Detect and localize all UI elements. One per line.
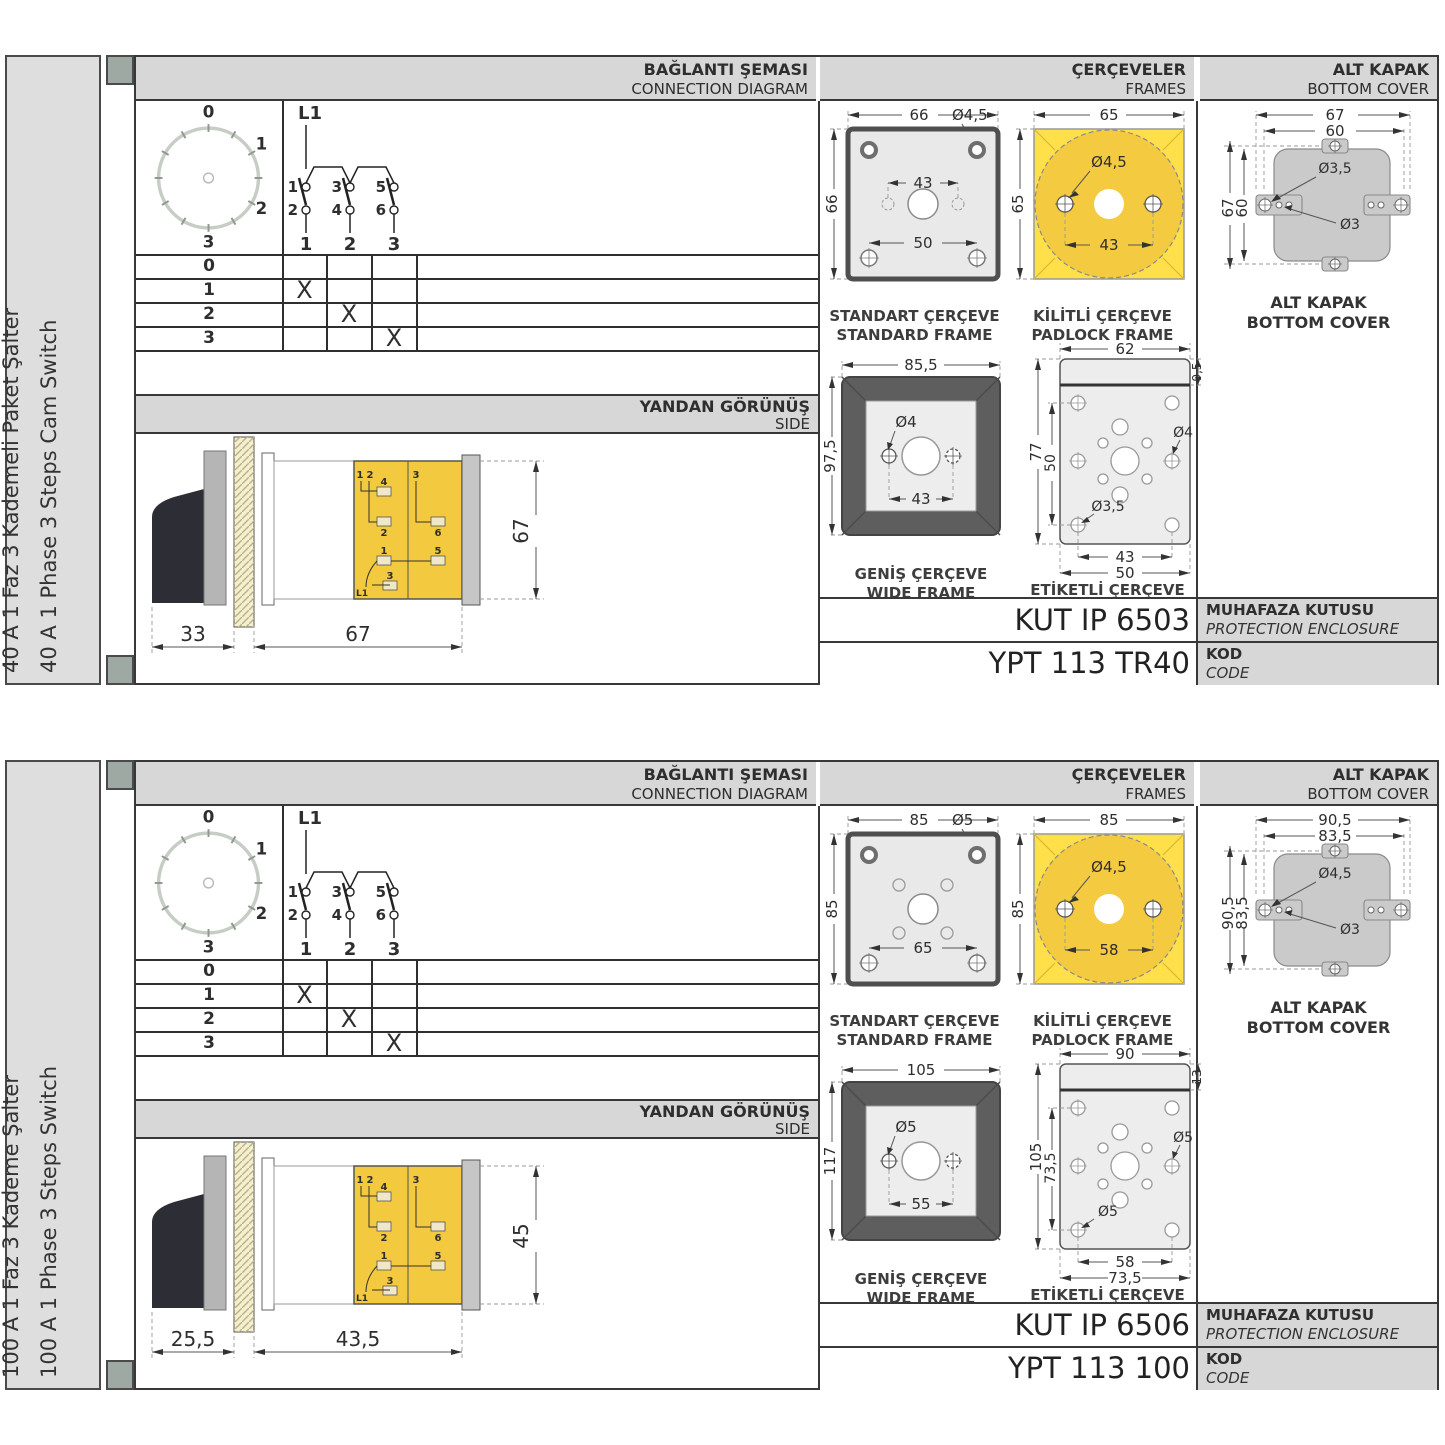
cov-hole1-label: Ø4,5 <box>1318 866 1351 882</box>
pad-hole-label: Ø4,5 <box>1091 858 1127 876</box>
product-sidebar: 40 A 1 Faz 3 Kademeli Paket Şalter 40 A … <box>5 55 101 685</box>
padlock-frame-drawing: 65 65 Ø4,5 43 <box>1010 103 1195 308</box>
enclosure-code-value: KUT IP 6506 <box>820 1302 1196 1346</box>
shaft-hole <box>1094 189 1124 219</box>
bottom-cover-title: ALT KAPAK BOTTOM COVER <box>1200 293 1437 333</box>
sv-label: 2 <box>381 528 388 539</box>
output-1: 1 <box>300 939 313 960</box>
wide-frame-title-tr: GENİŞ ÇERÇEVE <box>826 1270 1016 1289</box>
sv-dim-height: 67 <box>509 518 533 543</box>
bottom-cover-title-en: BOTTOM COVER <box>1200 1018 1437 1038</box>
code-label-en: CODE <box>1206 1369 1437 1387</box>
switch-position-dial: 0 1 2 3 <box>138 808 280 956</box>
wide-frame-drawing: 105 117 Ø5 55 <box>826 1058 1016 1268</box>
enclosure-label-en: PROTECTION ENCLOSURE <box>1206 1325 1437 1343</box>
sv-label: 1 <box>357 470 364 481</box>
width-dimensions: 33 67 <box>152 607 462 653</box>
standard-frame-drawing: 85 Ø5 85 <box>824 808 1009 1013</box>
header-connection-diagram: BAĞLANTI ŞEMASI CONNECTION DIAGRAM <box>136 762 816 806</box>
standard-frame-title: STANDART ÇERÇEVE STANDARD FRAME <box>822 307 1007 345</box>
sv-dim-height: 45 <box>509 1223 533 1248</box>
code-label-tr: KOD <box>1206 645 1437 664</box>
terminal-5: 5 <box>376 883 386 901</box>
header-bottom-cover: ALT KAPAK BOTTOM COVER <box>1200 57 1437 101</box>
sv-label: 3 <box>387 571 394 582</box>
dial-pos-3: 3 <box>203 233 215 252</box>
standard-frame-title: STANDART ÇERÇEVE STANDARD FRAME <box>822 1012 1007 1050</box>
lab-dim-inner-v: 50 <box>1043 454 1059 472</box>
cov-dim-h2: 60 <box>1233 198 1251 217</box>
header-connection-tr: BAĞLANTI ŞEMASI <box>136 60 808 80</box>
bottom-cover-title-tr: ALT KAPAK <box>1200 293 1437 313</box>
lab-dim-band: 9,5 <box>1190 362 1204 381</box>
wide-hole-label: Ø4 <box>895 413 916 431</box>
handle-base <box>204 1156 226 1310</box>
side-view-header: YANDAN GÖRÜNÜŞ SIDE <box>136 1099 818 1139</box>
enclosure-code-label: MUHAFAZA KUTUSU PROTECTION ENCLOSURE <box>1198 1302 1437 1346</box>
dial-ticks <box>155 124 263 232</box>
header-cover-tr: ALT KAPAK <box>1200 765 1429 785</box>
table-mark: X <box>283 983 326 1007</box>
handle-base <box>204 451 226 605</box>
output-3: 3 <box>388 939 401 960</box>
side-view-tr: YANDAN GÖRÜNÜŞ <box>136 397 810 416</box>
output-3: 3 <box>388 234 401 255</box>
phase-label: L1 <box>298 808 322 829</box>
product-code-value: YPT 113 100 <box>820 1346 1196 1390</box>
sv-label: 3 <box>387 1276 394 1287</box>
product-code-label: KOD CODE <box>1198 641 1437 685</box>
shaft-hole <box>902 437 940 475</box>
product-title-tr: 100 A 1 Faz 3 Kademe Şalter <box>0 1075 23 1378</box>
pad-dim-height: 85 <box>1009 899 1027 918</box>
terminal-3: 3 <box>332 883 342 901</box>
std-dim-inner: 43 <box>913 174 932 192</box>
switch-handle <box>152 489 204 603</box>
datasheet-panel: BAĞLANTI ŞEMASI CONNECTION DIAGRAM ÇERÇE… <box>134 55 1439 685</box>
bottom-cover-title-en: BOTTOM COVER <box>1200 313 1437 333</box>
wide-dim-height: 117 <box>821 1147 839 1176</box>
header-frames-tr: ÇERÇEVELER <box>820 60 1186 80</box>
enclosure-label-tr: MUHAFAZA KUTUSU <box>1206 1306 1437 1325</box>
lab-hole-left: Ø5 <box>1098 1204 1118 1220</box>
padlock-frame-title-tr: KİLİTLİ ÇERÇEVE <box>1010 1012 1195 1031</box>
terminal-4: 4 <box>332 906 342 924</box>
dial-ticks <box>155 829 263 937</box>
sv-label: 5 <box>435 1251 442 1262</box>
lab-hole-right: Ø4 <box>1173 425 1193 441</box>
table-line <box>416 959 418 1057</box>
header-frames: ÇERÇEVELER FRAMES <box>820 57 1194 101</box>
end-plate <box>462 1160 480 1310</box>
sv-dim-right: 43,5 <box>336 1327 381 1351</box>
product-title-en: 100 A 1 Phase 3 Steps Switch <box>37 1066 61 1378</box>
corner-hole <box>862 848 876 862</box>
pad-hole-label: Ø4,5 <box>1091 153 1127 171</box>
width-dimensions: 25,5 43,5 <box>152 1312 462 1358</box>
product-sidebar: 100 A 1 Faz 3 Kademe Şalter 100 A 1 Phas… <box>5 760 101 1390</box>
std-dim-height: 85 <box>823 899 841 918</box>
dial-pos-0: 0 <box>203 807 215 826</box>
std-dim-width: 85 <box>909 811 928 829</box>
table-line <box>282 806 284 1057</box>
cov-hole1-label: Ø3,5 <box>1318 161 1351 177</box>
sv-label: 4 <box>381 1182 388 1193</box>
table-mark: X <box>327 302 371 326</box>
cov-dim-h2: 83,5 <box>1233 896 1251 929</box>
sv-label: 3 <box>413 1175 420 1186</box>
table-mark: X <box>372 326 416 350</box>
table-line <box>282 101 284 352</box>
terminal-2: 2 <box>288 906 298 924</box>
wide-hole-label: Ø5 <box>895 1118 916 1136</box>
product-title-tr: 40 A 1 Faz 3 Kademeli Paket Şalter <box>0 308 23 673</box>
table-row-label: 1 <box>136 278 282 302</box>
table-line <box>416 254 418 352</box>
header-cover-en: BOTTOM COVER <box>1200 785 1429 803</box>
body-front <box>274 461 354 599</box>
std-dim-outer: 50 <box>913 234 932 252</box>
header-connection-en: CONNECTION DIAGRAM <box>136 785 808 803</box>
dial-pos-3: 3 <box>203 938 215 957</box>
lab-dim-inner-v: 73,5 <box>1043 1152 1059 1183</box>
wide-frame-title-tr: GENİŞ ÇERÇEVE <box>826 565 1016 584</box>
padlock-frame-drawing: 85 85 Ø4,5 58 <box>1010 808 1195 1013</box>
std-hole-label: Ø4,5 <box>952 106 988 124</box>
dial-pos-2: 2 <box>256 904 268 923</box>
side-view-tr: YANDAN GÖRÜNÜŞ <box>136 1102 810 1121</box>
shaft-hole <box>908 894 938 924</box>
header-frames-tr: ÇERÇEVELER <box>820 765 1186 785</box>
dial-pos-0: 0 <box>203 102 215 121</box>
height-dimension: 45 <box>480 1166 544 1304</box>
padlock-frame-title-tr: KİLİTLİ ÇERÇEVE <box>1010 307 1195 326</box>
sv-label: 2 <box>367 1175 374 1186</box>
side-view-en: SIDE <box>136 416 810 432</box>
table-mark: X <box>283 278 326 302</box>
front-plate <box>262 453 274 605</box>
dial-pos-1: 1 <box>256 135 268 154</box>
pad-dim-height: 65 <box>1009 194 1027 213</box>
corner-hole <box>970 848 984 862</box>
wide-dim-inner: 55 <box>911 1195 930 1213</box>
wide-dim-width: 105 <box>907 1061 936 1079</box>
header-frames: ÇERÇEVELER FRAMES <box>820 762 1194 806</box>
sv-label: 5 <box>435 546 442 557</box>
cov-hole2-label: Ø3 <box>1340 217 1360 233</box>
connection-circuit-diagram: L1 1 3 5 2 4 <box>284 101 574 251</box>
std-dim-height: 66 <box>823 194 841 213</box>
wide-dim-width: 85,5 <box>904 356 937 374</box>
side-view-header: YANDAN GÖRÜNÜŞ SIDE <box>136 394 818 434</box>
pad-dim-inner: 58 <box>1099 941 1118 959</box>
lab-dim-band: 13 <box>1190 1069 1204 1084</box>
header-connection-diagram: BAĞLANTI ŞEMASI CONNECTION DIAGRAM <box>136 57 816 101</box>
side-view-drawing: 1 2 4 2 1 3 L1 3 6 5 67 <box>144 435 644 683</box>
phase-label: L1 <box>298 103 322 124</box>
lab-dim-width: 90 <box>1115 1045 1134 1063</box>
shaft-hole <box>1094 894 1124 924</box>
pad-dim-inner: 43 <box>1099 236 1118 254</box>
table-row-label: 0 <box>136 959 282 983</box>
column-divider <box>818 101 820 683</box>
enclosure-code-label: MUHAFAZA KUTUSU PROTECTION ENCLOSURE <box>1198 597 1437 641</box>
dial-center <box>204 173 214 183</box>
sv-dim-left: 25,5 <box>171 1327 216 1351</box>
wide-frame-drawing: 85,5 97,5 Ø4 43 <box>826 353 1016 563</box>
binder-mark <box>106 55 134 85</box>
terminal-1: 1 <box>288 883 298 901</box>
code-label-en: CODE <box>1206 664 1437 682</box>
column-divider <box>818 806 820 1388</box>
terminal-2: 2 <box>288 201 298 219</box>
table-line <box>136 1055 818 1057</box>
lab-dim-b2: 50 <box>1115 564 1134 582</box>
binder-mark <box>106 1360 134 1390</box>
output-2: 2 <box>344 939 357 960</box>
body-front <box>274 1166 354 1304</box>
sv-dim-right: 67 <box>345 622 370 646</box>
enclosure-code-value: KUT IP 6503 <box>820 597 1196 641</box>
wide-dim-height: 97,5 <box>821 439 839 472</box>
product-code-value: YPT 113 TR40 <box>820 641 1196 685</box>
corner-hole <box>862 143 876 157</box>
terminal-6: 6 <box>376 906 386 924</box>
bottom-cover-title-tr: ALT KAPAK <box>1200 998 1437 1018</box>
front-plate <box>262 1158 274 1310</box>
enclosure-label-tr: MUHAFAZA KUTUSU <box>1206 601 1437 620</box>
table-line <box>136 350 818 352</box>
header-cover-en: BOTTOM COVER <box>1200 80 1429 98</box>
lab-dim-b2: 73,5 <box>1108 1269 1141 1287</box>
std-hole-label: Ø5 <box>952 811 973 829</box>
standard-frame-title-en: STANDARD FRAME <box>822 1031 1007 1050</box>
connection-circuit-diagram: L1 1 3 5 2 4 <box>284 806 574 956</box>
header-connection-en: CONNECTION DIAGRAM <box>136 80 808 98</box>
height-dimension: 67 <box>480 461 544 599</box>
header-frames-en: FRAMES <box>820 785 1186 803</box>
standard-frame-title-tr: STANDART ÇERÇEVE <box>822 1012 1007 1031</box>
sv-label: 1 <box>381 546 388 557</box>
dial-pos-2: 2 <box>256 199 268 218</box>
corner-hole <box>970 143 984 157</box>
side-view-drawing: 1 2 4 2 1 3 L1 3 6 5 45 <box>144 1140 644 1388</box>
table-row-label: 2 <box>136 302 282 326</box>
pad-dim-width: 85 <box>1099 811 1118 829</box>
labelled-frame-drawing: 90 13 105 73,5 <box>1008 1044 1203 1284</box>
panel-hatch <box>234 437 254 627</box>
header-connection-tr: BAĞLANTI ŞEMASI <box>136 765 808 785</box>
pad-dim-width: 65 <box>1099 106 1118 124</box>
shaft-hole <box>902 1142 940 1180</box>
sv-label: 2 <box>367 470 374 481</box>
standard-frame-title-en: STANDARD FRAME <box>822 326 1007 345</box>
switch-handle <box>152 1194 204 1308</box>
sv-label: L1 <box>356 589 368 599</box>
output-2: 2 <box>344 234 357 255</box>
product-code-label: KOD CODE <box>1198 1346 1437 1390</box>
terminal-6: 6 <box>376 201 386 219</box>
standard-frame-title-tr: STANDART ÇERÇEVE <box>822 307 1007 326</box>
datasheet-panel: BAĞLANTI ŞEMASI CONNECTION DIAGRAM ÇERÇE… <box>134 760 1439 1390</box>
sv-label: 6 <box>435 528 442 539</box>
dial-center <box>204 878 214 888</box>
terminal-5: 5 <box>376 178 386 196</box>
code-label-tr: KOD <box>1206 1350 1437 1369</box>
std-dim-width: 66 <box>909 106 928 124</box>
table-row-label: 3 <box>136 1031 282 1055</box>
cov-hole2-label: Ø3 <box>1340 922 1360 938</box>
table-row-label: 0 <box>136 254 282 278</box>
wide-dim-inner: 43 <box>911 490 930 508</box>
lab-hole-right: Ø5 <box>1173 1130 1193 1146</box>
terminal-3: 3 <box>332 178 342 196</box>
table-row-label: 3 <box>136 326 282 350</box>
table-row-label: 1 <box>136 983 282 1007</box>
panel-hatch <box>234 1142 254 1332</box>
end-plate <box>462 455 480 605</box>
sv-label: 1 <box>357 1175 364 1186</box>
bottom-cover-title: ALT KAPAK BOTTOM COVER <box>1200 998 1437 1038</box>
product-title-en: 40 A 1 Phase 3 Steps Cam Switch <box>37 320 61 673</box>
catalog-page: 40 A 1 Faz 3 Kademeli Paket Şalter 40 A … <box>0 0 1445 1445</box>
sv-dim-left: 33 <box>180 622 205 646</box>
cov-dim-w2: 60 <box>1325 122 1344 140</box>
sv-label: L1 <box>356 1294 368 1304</box>
std-dim-outer: 65 <box>913 939 932 957</box>
cov-dim-w2: 83,5 <box>1318 827 1351 845</box>
table-mark: X <box>372 1031 416 1055</box>
output-1: 1 <box>300 234 313 255</box>
switch-position-dial: 0 1 2 3 <box>138 103 280 251</box>
bottom-cover-drawing: 90,5 83,5 90,5 83,5 <box>1218 810 1433 995</box>
lab-hole-left: Ø3,5 <box>1091 499 1124 515</box>
dial-pos-1: 1 <box>256 840 268 859</box>
sv-label: 3 <box>413 470 420 481</box>
binder-mark <box>106 760 134 790</box>
labelled-frame-drawing: 62 9,5 77 50 <box>1008 339 1203 579</box>
shaft-hole <box>908 189 938 219</box>
bottom-cover-drawing: 67 60 67 60 Ø <box>1218 105 1433 290</box>
sv-label: 6 <box>435 1233 442 1244</box>
header-frames-en: FRAMES <box>820 80 1186 98</box>
sv-label: 4 <box>381 477 388 488</box>
header-bottom-cover: ALT KAPAK BOTTOM COVER <box>1200 762 1437 806</box>
lab-dim-width: 62 <box>1115 340 1134 358</box>
product-section: 40 A 1 Faz 3 Kademeli Paket Şalter 40 A … <box>0 55 1445 685</box>
sv-label: 1 <box>381 1251 388 1262</box>
binder-mark <box>106 655 134 685</box>
terminal-1: 1 <box>288 178 298 196</box>
enclosure-label-en: PROTECTION ENCLOSURE <box>1206 620 1437 638</box>
terminal-4: 4 <box>332 201 342 219</box>
standard-frame-drawing: 66 Ø4,5 66 43 <box>824 103 1009 308</box>
side-view-en: SIDE <box>136 1121 810 1137</box>
table-row-label: 2 <box>136 1007 282 1031</box>
table-mark: X <box>327 1007 371 1031</box>
product-section: 100 A 1 Faz 3 Kademe Şalter 100 A 1 Phas… <box>0 760 1445 1390</box>
header-cover-tr: ALT KAPAK <box>1200 60 1429 80</box>
sv-label: 2 <box>381 1233 388 1244</box>
